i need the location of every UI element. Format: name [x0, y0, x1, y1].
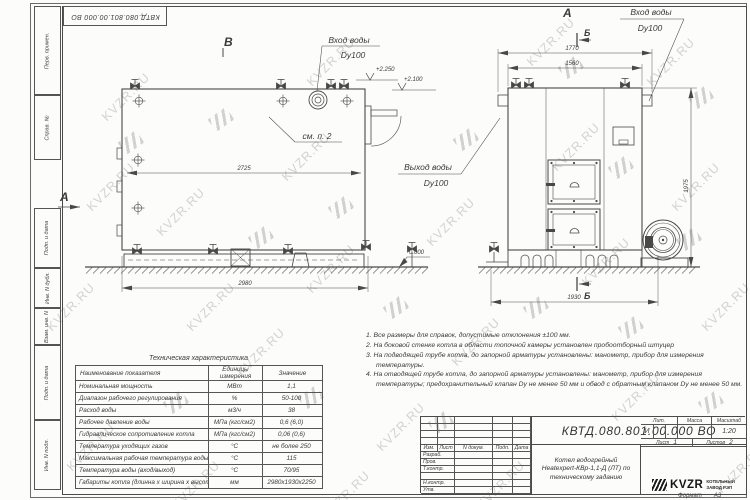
table-row: Температура уходящих газов°Сне более 250 — [76, 441, 323, 453]
note-item: 4. На отводящей трубе котла, до запорной… — [366, 370, 744, 390]
side-view: 2725 2980 +2.250 +2.100 0.000 Вход воды … — [58, 35, 500, 292]
row-value: 50-100 — [263, 393, 323, 405]
row-units: мм — [209, 477, 263, 489]
dim-1560: 1560 — [565, 61, 579, 67]
row-units: °С — [209, 465, 263, 477]
signature-cell — [455, 480, 493, 487]
table-row: Расход водым3/ч38 — [76, 405, 323, 417]
format-size: А3 — [714, 493, 721, 499]
lit-cell-3 — [666, 425, 678, 439]
company-line1: КОТЕЛЬНЫЙ — [706, 479, 735, 485]
table-row: Габариты котла (длинна х ширина х высота… — [76, 477, 323, 489]
signature-row-label: Пров. — [421, 459, 455, 466]
dim-2980: 2980 — [237, 281, 252, 287]
row-value: 2980х1930х2250 — [263, 477, 323, 489]
frame-column-label: Инв. N подл. — [34, 420, 61, 490]
table-row: Максимальная рабочая температура воды°С1… — [76, 453, 323, 465]
top-stamp-number: КВТД.080.801.00.000 ВО — [71, 13, 160, 20]
signature-row-label — [421, 473, 455, 480]
tech-table-header: Наименование показателя Единицы измерени… — [76, 366, 323, 381]
row-units: % — [209, 393, 263, 405]
signature-cell — [455, 466, 493, 473]
mass-header: Масса — [678, 417, 712, 425]
row-units: м3/ч — [209, 405, 263, 417]
dim-1975: 1975 — [684, 179, 690, 193]
signature-row-label: Разраб. — [421, 452, 455, 459]
scale-header: Масштаб — [712, 417, 746, 425]
signature-row-label: Т.контр. — [421, 466, 455, 473]
frame-column-label: Подп. и дата — [34, 345, 61, 420]
revision-cell — [493, 431, 513, 438]
revision-cell: Изм. — [421, 445, 438, 452]
row-units: °С — [209, 453, 263, 465]
inlet-flange — [309, 91, 327, 109]
frame-column-label: Перв. примен. — [34, 6, 61, 95]
row-value: 0,06 (0,6) — [263, 429, 323, 441]
sheet-number: 1 — [673, 439, 677, 446]
revision-cell — [513, 438, 531, 445]
signature-cell — [455, 452, 493, 459]
revision-cell — [438, 431, 455, 438]
upper-door — [546, 160, 600, 204]
signature-cell — [493, 473, 513, 480]
row-name: Температура уходящих газов — [76, 441, 209, 453]
blower-fan — [641, 220, 688, 267]
table-row: Рабочее давление водыМПа (кгс/см2)0,6 (6… — [76, 417, 323, 429]
sheet-label: Лист — [656, 440, 669, 446]
signature-cell — [493, 466, 513, 473]
doc-name-line1: Котел водогрейный — [555, 457, 618, 466]
top-stamp: КВТД.080.801.00.000 ВО — [63, 6, 167, 26]
kvzr-logo-text: KVZR — [670, 479, 703, 491]
revision-cell — [455, 438, 493, 445]
row-name: Расход воды — [76, 405, 209, 417]
left-strip: Перв. примен.Справ. №Подп. и датаИнв. N … — [34, 0, 62, 500]
elevation-2250: +2.250 — [376, 67, 395, 73]
row-units: МПа (кгс/см2) — [209, 429, 263, 441]
elevation-2100: +2.100 — [404, 77, 423, 83]
water-inlet-label: Вход воды — [328, 35, 370, 45]
signature-cell — [493, 452, 513, 459]
format-label: Формат А3 — [678, 493, 744, 499]
col-value: Значение — [263, 366, 323, 381]
notes-list: 1. Все размеры для справок, допустимые о… — [366, 331, 744, 390]
water-outlet-label: Выход воды — [404, 162, 453, 172]
doc-name-line3: техническому заданию — [550, 474, 622, 483]
revision-cell: Дата — [513, 445, 531, 452]
front-view: 1770 1560 1975 1930 Б Б А Вход воды — [408, 6, 701, 306]
tech-table-body: Номинальная мощностьМВт1,1Диапазон рабоч… — [76, 381, 323, 489]
row-name: Температура воды (вход/выход) — [76, 465, 209, 477]
revision-cell — [421, 424, 438, 431]
row-name: Диапазон рабочего регулирования — [76, 393, 209, 405]
revision-cell — [421, 438, 438, 445]
table-row: Гидравлическое сопротивление котлаМПа (к… — [76, 429, 323, 441]
revision-cell — [493, 424, 513, 431]
water-inlet-label-front: Вход воды — [630, 7, 672, 17]
table-row: Диапазон рабочего регулирования%50-100 — [76, 393, 323, 405]
revision-cell — [421, 417, 438, 424]
revision-cell — [455, 431, 493, 438]
frame-column-label: Подп. и дата — [34, 208, 61, 268]
frame-column-label: Инв. N дубл. — [34, 268, 61, 308]
signature-cell — [513, 473, 531, 480]
sheets-cell: Листов 2 — [693, 439, 746, 447]
mass-value — [678, 425, 712, 439]
kvzr-logo-icon — [652, 479, 667, 491]
row-name: Номинальная мощность — [76, 381, 209, 393]
company-line2: ЗАВОД РЭП — [706, 485, 735, 491]
col-name: Наименование показателя — [76, 366, 209, 381]
note-item: 2. На боковой стенке котла в области топ… — [366, 341, 744, 351]
revision-cell — [421, 431, 438, 438]
scale-value: 1:20 — [712, 425, 746, 439]
doc-name: Котел водогрейный Heatexpert-КВр-1,1-Д (… — [531, 445, 641, 494]
drawing-sheet: KVZR.RUKVZR.RUKVZR.RUKVZR.RUKVZR.RUKVZR.… — [0, 0, 750, 500]
table-row: Температура воды (вход/выход)°С70/95 — [76, 465, 323, 477]
signature-cell — [513, 487, 531, 494]
signature-row-label: Н.контр. — [421, 480, 455, 487]
water-outlet-dn: Dy100 — [424, 178, 449, 188]
signature-row-label: Утв. — [421, 487, 455, 494]
revision-cell — [455, 424, 493, 431]
col-units: Единицы измерения — [209, 366, 263, 381]
row-name: Гидравлическое сопротивление котла — [76, 429, 209, 441]
doc-name-line2: Heatexpert-КВр-1,1-Д (ЛТ) по — [542, 465, 631, 474]
format-word: Формат — [678, 493, 702, 499]
lit-value: И — [641, 425, 654, 439]
revision-cell: Подп. — [493, 445, 513, 452]
sheet-cell: Лист 1 — [641, 439, 693, 447]
signature-cell — [513, 452, 531, 459]
signature-cell — [493, 459, 513, 466]
revision-cell — [493, 438, 513, 445]
section-letter-b-top: Б — [584, 28, 591, 38]
row-units: °С — [209, 441, 263, 453]
revision-cell — [513, 424, 531, 431]
company-name: КОТЕЛЬНЫЙ ЗАВОД РЭП — [706, 479, 735, 490]
sheets-number: 2 — [729, 439, 733, 446]
revision-cell: N докум. — [455, 445, 493, 452]
row-units: МВт — [209, 381, 263, 393]
signature-cell — [455, 473, 493, 480]
revision-cell: Лист — [438, 445, 455, 452]
frame-column-label: Взам. инв. N — [34, 308, 61, 345]
dim-2725: 2725 — [236, 166, 251, 172]
row-value: 70/95 — [263, 465, 323, 477]
lower-door — [546, 209, 600, 250]
row-units: МПа (кгс/см2) — [209, 417, 263, 429]
row-value: 1,1 — [263, 381, 323, 393]
water-inlet-dn: Dy100 — [341, 50, 366, 60]
row-value: 115 — [263, 453, 323, 465]
lit-cell-2 — [654, 425, 666, 439]
signature-cell — [513, 459, 531, 466]
company-logo-cell: KVZR КОТЕЛЬНЫЙ ЗАВОД РЭП — [641, 475, 746, 494]
signature-cell — [455, 459, 493, 466]
signature-cell — [513, 466, 531, 473]
note-item: 3. На подводящей трубе котла, до запорно… — [366, 351, 744, 371]
revision-cell — [455, 417, 493, 424]
lit-header: Лит. — [641, 417, 678, 425]
revision-cell — [438, 438, 455, 445]
section-letter-b-bottom: Б — [584, 291, 591, 301]
table-row: Номинальная мощностьМВт1,1 — [76, 381, 323, 393]
row-value: не более 250 — [263, 441, 323, 453]
see-note-label: см. п. 2 — [303, 131, 332, 141]
revision-cell — [493, 417, 513, 424]
water-inlet-dn-front: Dy100 — [638, 23, 663, 33]
row-name: Рабочее давление воды — [76, 417, 209, 429]
signature-cell — [455, 487, 493, 494]
row-value: 38 — [263, 405, 323, 417]
view-letter-v: В — [224, 35, 233, 49]
signature-cell — [493, 480, 513, 487]
revision-cell — [513, 431, 531, 438]
signature-cell — [513, 480, 531, 487]
dim-1930: 1930 — [567, 295, 581, 301]
tech-table-title: Техническая характеристика — [75, 355, 322, 362]
signature-cell — [493, 487, 513, 494]
revision-cell — [438, 417, 455, 424]
note-item: 1. Все размеры для справок, допустимые о… — [366, 331, 744, 341]
frame-column-label: Справ. № — [34, 95, 61, 160]
view-letter-a: А — [562, 6, 572, 20]
revision-cell — [513, 417, 531, 424]
tech-table: Наименование показателя Единицы измерени… — [75, 365, 323, 489]
title-block: Изм.ЛистN докум.Подп.ДатаРазраб.Пров.Т.к… — [420, 416, 745, 493]
row-name: Максимальная рабочая температура воды — [76, 453, 209, 465]
sheets-label: Листов — [706, 440, 725, 446]
revision-cell — [438, 424, 455, 431]
row-name: Габариты котла (длинна х ширина х высота… — [76, 477, 209, 489]
row-value: 0,6 (6,0) — [263, 417, 323, 429]
